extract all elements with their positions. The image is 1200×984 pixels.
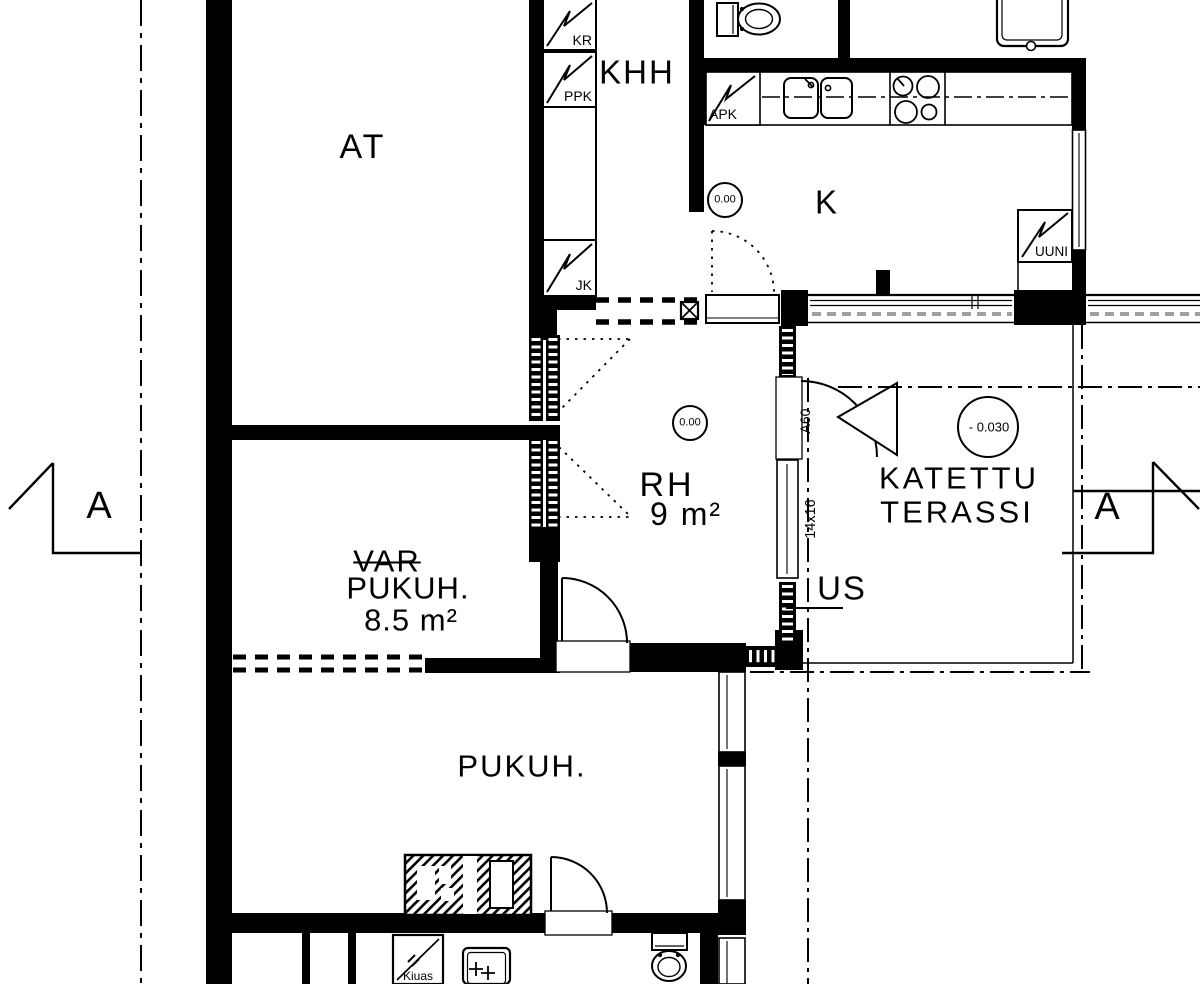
elevation-label-kitchen: 0.00 bbox=[714, 195, 735, 206]
room-area-var-pukuh: 8.5 m² bbox=[364, 605, 458, 636]
elevation-label-rh: 0.00 bbox=[679, 418, 700, 429]
appliance-boxes bbox=[543, 0, 1072, 296]
room-label-pukuh: PUKUH. bbox=[457, 751, 586, 782]
floor-plan: AT KHH K RH 9 m² VAR PUKUH. 8.5 m² PUKUH… bbox=[0, 0, 1200, 984]
toilet-bottom bbox=[652, 933, 687, 981]
door-leaf-triangle bbox=[838, 383, 897, 455]
appliance-label-apk: APK bbox=[709, 107, 737, 121]
window-label-14x16: 14x16 bbox=[804, 499, 819, 539]
dashed-openings bbox=[233, 300, 703, 670]
section-marker-label-right: A bbox=[1094, 488, 1119, 526]
washbasin bbox=[463, 948, 510, 984]
appliance-label-uuni: UUNI bbox=[1018, 245, 1068, 259]
room-label-khh: KHH bbox=[599, 56, 675, 89]
post-symbol bbox=[681, 302, 698, 319]
kitchen-counter bbox=[706, 72, 1072, 125]
fireplace bbox=[405, 855, 531, 915]
windows bbox=[719, 130, 1200, 984]
appliance-label-kr: KR bbox=[543, 33, 592, 47]
shower-tray bbox=[997, 0, 1068, 51]
elevation-label-terrace: - 0.030 bbox=[969, 421, 1009, 434]
door-sill bbox=[556, 641, 630, 672]
appliance-label-ppk: PPK bbox=[543, 89, 592, 103]
room-label-at: AT bbox=[340, 130, 387, 164]
appliance-label-jk: JK bbox=[543, 278, 592, 292]
room-label-kitchen: K bbox=[815, 186, 837, 219]
toilet-top bbox=[717, 3, 780, 36]
appliance-label-kiuas: Kiuas bbox=[403, 970, 433, 982]
wall-label-us: US bbox=[817, 572, 867, 605]
door-sill bbox=[545, 911, 612, 935]
section-marker-label-left: A bbox=[86, 487, 111, 525]
room-label-var-pukuh: PUKUH. bbox=[346, 573, 469, 604]
room-label-terrace-2: TERASSI bbox=[880, 497, 1034, 528]
lintel-beam bbox=[706, 295, 779, 323]
room-area-rh: 9 m² bbox=[650, 498, 722, 530]
room-label-terrace-1: KATETTU bbox=[879, 463, 1039, 494]
door-label-a60: A60 bbox=[798, 409, 812, 434]
